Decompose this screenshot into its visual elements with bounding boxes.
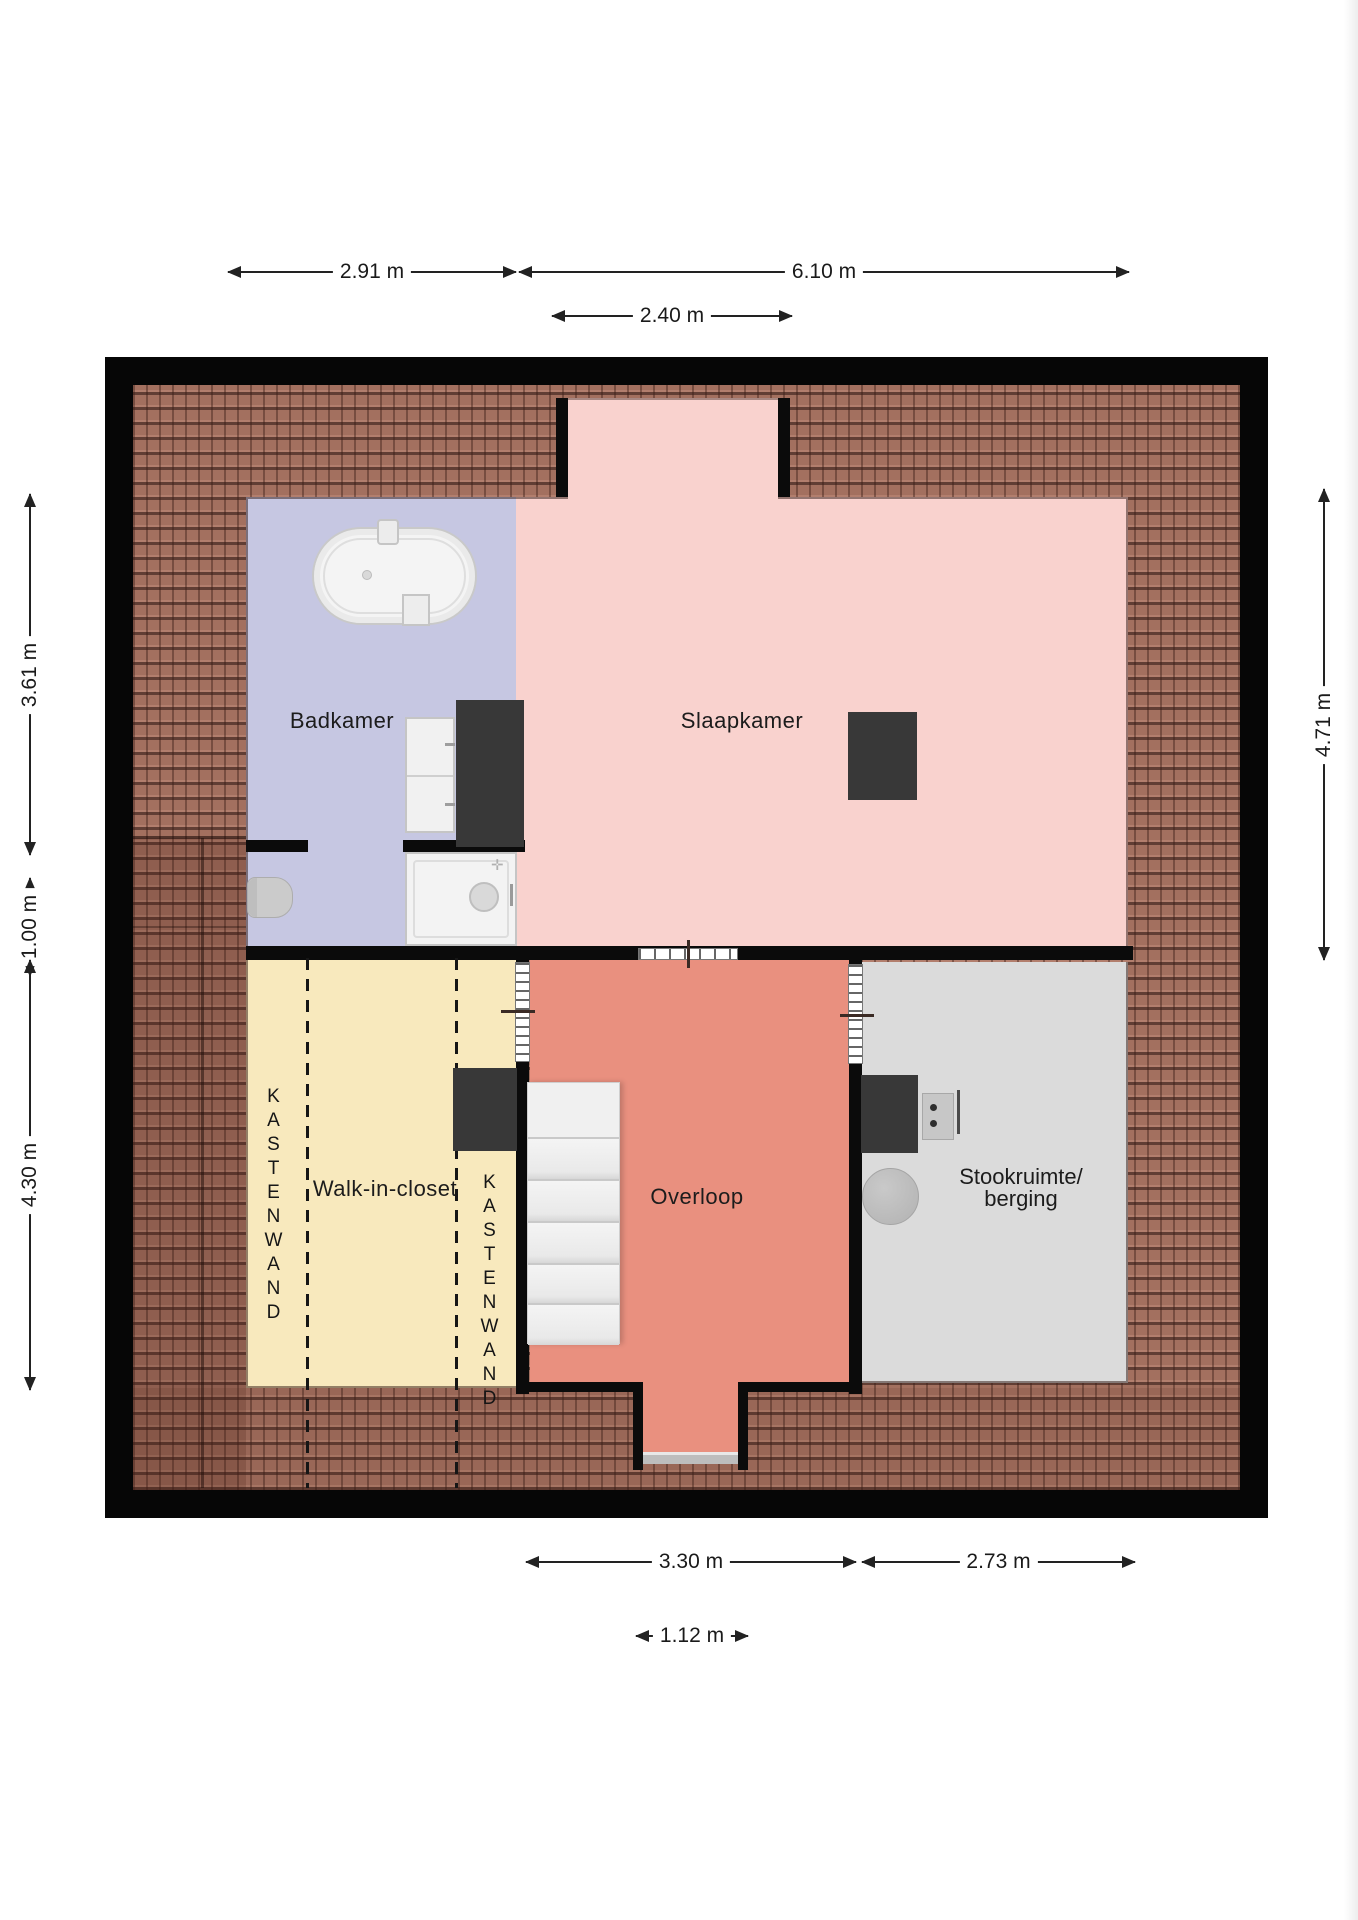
stair-tread [528,1265,619,1305]
shower-tray: ✛ [405,852,517,946]
closet-cabinet [453,1068,517,1151]
dim-right-4-71: 4.71 m [1318,489,1330,960]
wall-overloop-bottom [738,1382,850,1392]
water-heater-tank [862,1168,919,1225]
room-label-walk-in-closet: Walk-in-closet [313,1176,457,1202]
stookruimte-line2: berging [984,1186,1057,1211]
dim-label: 2.40 m [633,303,711,329]
floor-plan: ✛ Badkamer Slaapkamer Walk-in-closet Ove… [0,0,1358,1920]
bathtub-rim [323,538,466,614]
stair-tread [528,1139,619,1181]
dim-bottom-3-30: 3.30 m [526,1556,856,1568]
stair-landing [528,1083,619,1139]
room-slaapkamer [516,497,1128,946]
room-walk-in-closet [246,958,517,1388]
dormer-wall [556,398,568,497]
stair-tread [528,1223,619,1265]
toilet [247,877,293,918]
room-label-overloop: Overloop [650,1184,743,1210]
dim-label: 4.71 m [1311,685,1337,763]
dim-label: 3.61 m [17,635,43,713]
kastenwand-label-right: KASTENWAND [478,1172,500,1412]
control-box [922,1093,954,1140]
room-label-stookruimte-berging: Stookruimte/ berging [959,1166,1083,1210]
wall-overloop-bottom [525,1382,643,1392]
dormer-window [643,1452,738,1464]
dim-bottom-1-12: 1.12 m [636,1630,748,1642]
dim-bottom-2-73: 2.73 m [862,1556,1135,1568]
cabinet-divider [407,775,453,777]
slaapkamer-cabinet [848,712,917,800]
wall-badkamer-inner [246,840,308,852]
dim-label: 2.91 m [333,259,411,285]
door-tick [687,940,690,968]
dormer-wall [738,1382,748,1470]
dim-left-4-30: 4.30 m [24,960,36,1390]
cabinet-handle [445,803,455,806]
dim-label: 1.00 m [17,888,43,966]
bathtub-faucet-icon [377,519,399,545]
dim-label: 1.12 m [653,1623,731,1649]
toilet-tank [248,878,257,917]
slaapkamer-dormer [568,398,778,499]
dormer-wall [633,1382,643,1470]
cabinet-handle [445,743,455,746]
stair-tread [528,1181,619,1223]
dim-top-2-40: 2.40 m [552,310,792,322]
door-tick [840,1014,874,1017]
boiler-unit [861,1075,918,1153]
kastenwand-dashed-wall [455,958,458,1488]
door-tick [501,1010,535,1013]
dim-label: 6.10 m [785,259,863,285]
dim-label: 4.30 m [17,1136,43,1214]
shower-drain-icon [469,882,499,912]
kastenwand-label-left: KASTENWAND [262,1086,284,1326]
dormer-wall [778,398,790,497]
dim-top-6-10: 6.10 m [519,266,1129,278]
room-label-slaapkamer: Slaapkamer [681,708,803,734]
dim-top-2-91: 2.91 m [228,266,516,278]
shower-handle-icon [510,884,513,906]
room-label-badkamer: Badkamer [290,708,394,734]
dim-left-3-61: 3.61 m [24,494,36,855]
bathtub-drain-icon [362,570,372,580]
control-box-knob [930,1104,937,1111]
shower-faucet-icon: ✛ [491,856,504,874]
washbasin-cabinet [405,717,455,833]
overloop-dormer [643,1382,738,1458]
stair-tread [528,1305,619,1345]
dim-label: 2.73 m [959,1549,1037,1575]
dim-label: 3.30 m [652,1549,730,1575]
bathtub-tray [402,594,430,626]
staircase [527,1082,620,1344]
control-box-knob [930,1120,937,1127]
badkamer-wardrobe [456,700,524,847]
meter-line [957,1090,960,1134]
kastenwand-dashed-wall [306,958,309,1488]
